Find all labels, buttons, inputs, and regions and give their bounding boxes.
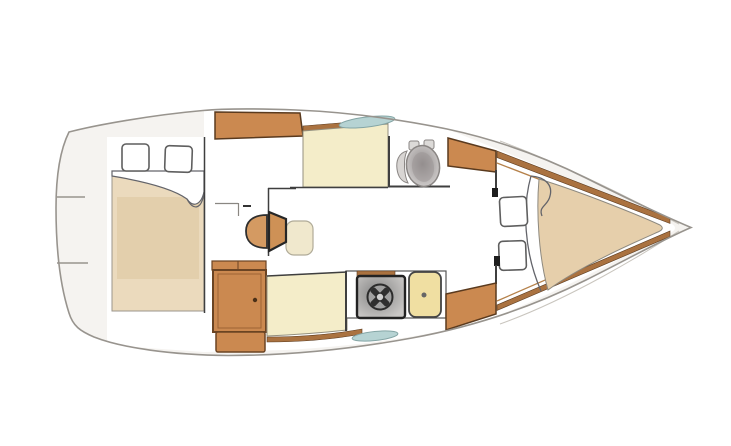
wardrobe-body	[213, 270, 266, 332]
sink-drain	[422, 293, 427, 298]
bow-doorjamb-bottom	[494, 256, 500, 266]
storage-locker-top	[215, 112, 303, 139]
wardrobe-top-lip	[212, 261, 266, 270]
table-leaf-folded	[286, 221, 313, 255]
wardrobe-base	[216, 332, 265, 352]
wardrobe-locker	[212, 261, 266, 352]
yacht-floorplan: Sailing yacht interior layout plan — top…	[0, 0, 731, 446]
floorplan-canvas	[0, 0, 731, 446]
aft-berth-quilt	[117, 197, 199, 279]
vberth-pillow-top	[499, 196, 527, 226]
stove-burner-icon	[368, 285, 393, 310]
aft-pillow-right	[165, 146, 193, 173]
aft-pillow-left	[122, 144, 149, 171]
burner-center	[376, 293, 384, 301]
wardrobe-handle	[253, 298, 257, 302]
lower-settee	[267, 272, 347, 336]
upper-settee	[303, 124, 388, 187]
vberth-pillow-bottom	[499, 241, 527, 271]
bow-doorjamb-top	[492, 188, 498, 197]
